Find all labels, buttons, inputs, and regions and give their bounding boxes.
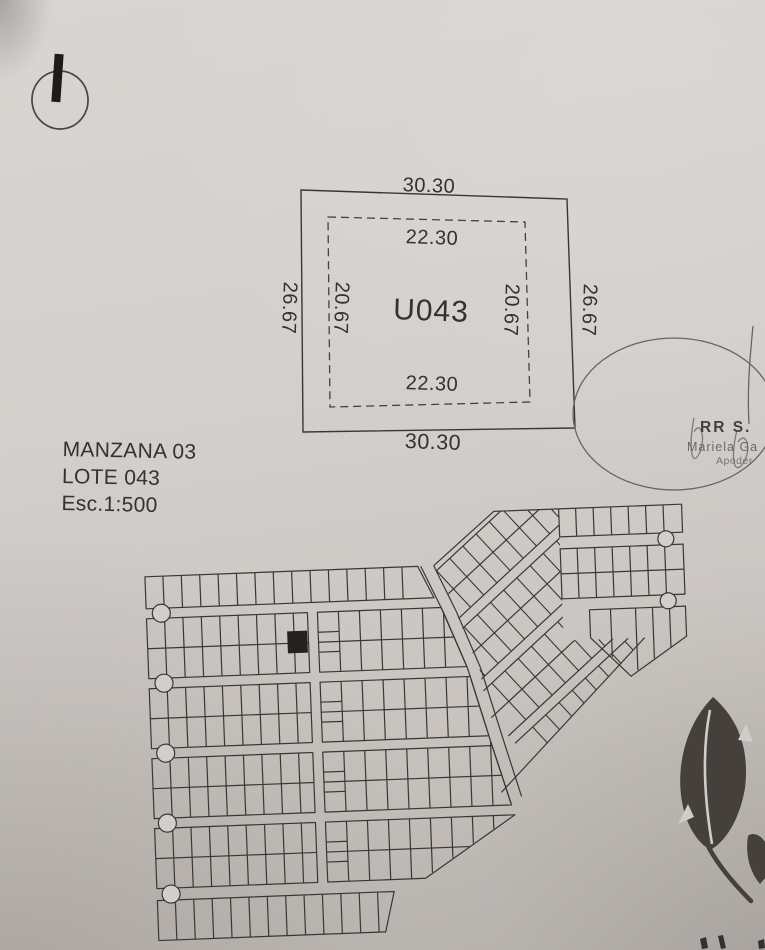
dim-outer-right: 26.67 bbox=[577, 283, 601, 336]
dim-outer-top: 30.30 bbox=[402, 174, 455, 198]
signature-stroke bbox=[748, 326, 753, 424]
highlighted-lot bbox=[287, 631, 308, 654]
dim-inner-bottom: 22.30 bbox=[405, 372, 458, 396]
notary-stamp: RR S. Mariela Ga Apoder bbox=[573, 326, 765, 490]
escala-label: Esc.1:500 bbox=[61, 492, 158, 517]
stamp-name: Mariela Ga bbox=[687, 440, 758, 454]
document-photo: 30.30 22.30 U043 22.30 30.30 26.67 20.67… bbox=[0, 0, 765, 950]
leaf-logo-icon bbox=[678, 697, 765, 901]
stamp-role: Apoder bbox=[716, 455, 753, 467]
dim-outer-left: 26.67 bbox=[277, 281, 301, 334]
site-info: MANZANA 03 LOTE 043 Esc.1:500 bbox=[61, 438, 196, 518]
edge-marks bbox=[700, 935, 765, 949]
lote-label: LOTE 043 bbox=[62, 465, 161, 490]
dim-inner-left: 20.67 bbox=[329, 281, 353, 334]
stamp-company: RR S. bbox=[700, 419, 751, 436]
dim-inner-right: 20.67 bbox=[499, 283, 523, 336]
plot-code: U043 bbox=[393, 293, 470, 329]
north-arrow-icon bbox=[28, 54, 92, 133]
dim-inner-top: 22.30 bbox=[405, 226, 458, 250]
manzana-label: MANZANA 03 bbox=[62, 438, 196, 464]
dim-outer-bottom: 30.30 bbox=[404, 429, 461, 455]
plot-diagram: 30.30 22.30 U043 22.30 30.30 26.67 20.67… bbox=[277, 174, 601, 455]
subdivision-map bbox=[134, 269, 765, 940]
